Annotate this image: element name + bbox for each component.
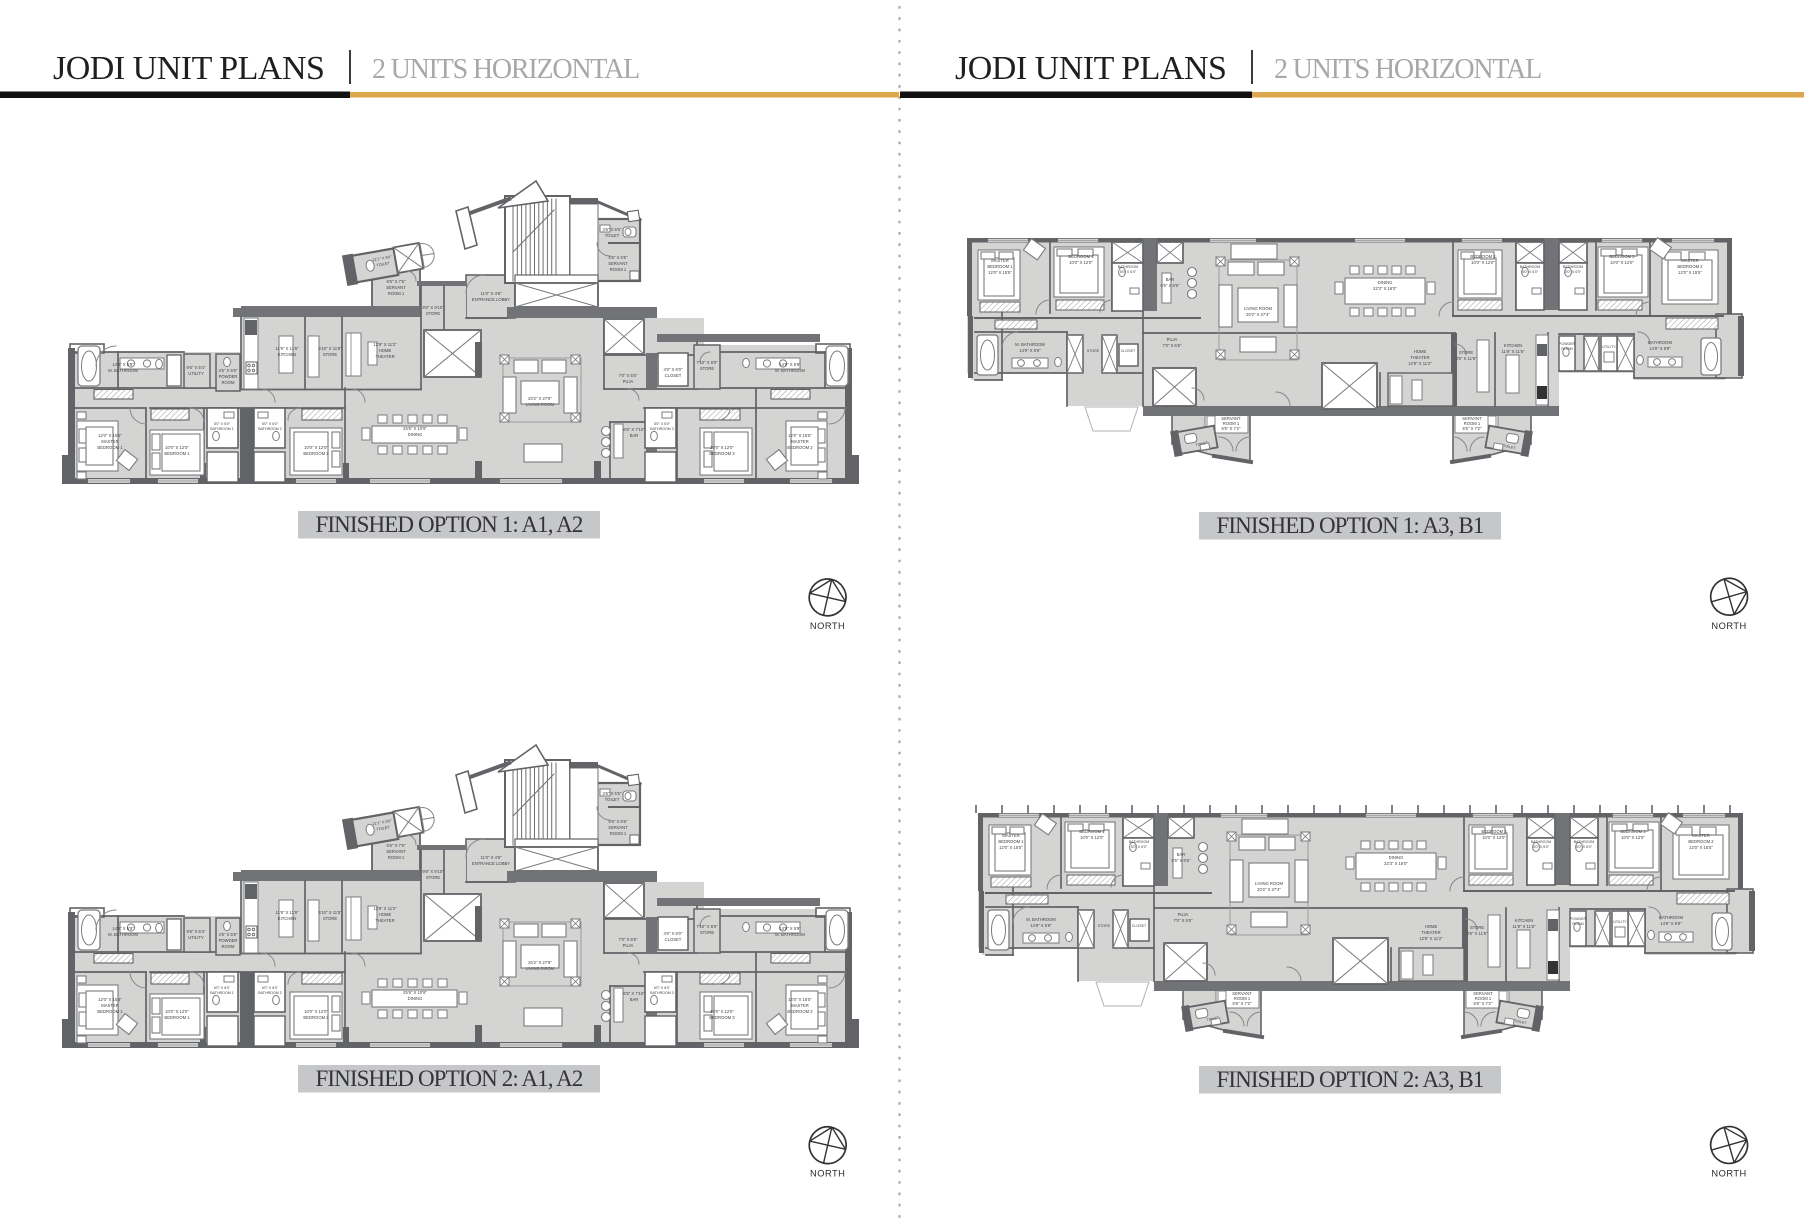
svg-text:6'5" X 6'5": 6'5" X 6'5": [1160, 283, 1180, 288]
svg-text:THEATER: THEATER: [1410, 355, 1429, 360]
svg-text:M. BATHROOM: M. BATHROOM: [108, 368, 138, 373]
svg-text:STORE: STORE: [426, 311, 441, 316]
svg-text:HOME: HOME: [379, 348, 392, 353]
svg-text:BATHROOM: BATHROOM: [1563, 265, 1584, 269]
svg-text:7'0" X 5'5": 7'0" X 5'5": [1162, 343, 1182, 348]
svg-text:BATHROOM: BATHROOM: [1118, 265, 1139, 269]
svg-text:12'0" X 15'5": 12'0" X 15'5": [988, 270, 1012, 275]
svg-text:12'0" X 15'5": 12'0" X 15'5": [1678, 270, 1702, 275]
svg-text:9'5" X 5'4": 9'5" X 5'4": [186, 365, 206, 370]
svg-text:POWDER: POWDER: [219, 374, 238, 379]
svg-text:20'2" X 27'9": 20'2" X 27'9": [528, 396, 552, 401]
svg-text:NORTH: NORTH: [1711, 1169, 1746, 1179]
svg-text:CLOSET: CLOSET: [1121, 349, 1136, 353]
svg-text:12'0" X 15'5": 12'0" X 15'5": [788, 433, 812, 438]
svg-text:NORTH: NORTH: [1711, 621, 1746, 631]
svg-text:12'9" X 11'2": 12'9" X 11'2": [373, 342, 397, 347]
svg-text:11'0" X 4'6": 11'0" X 4'6": [480, 291, 502, 296]
svg-text:MASTER: MASTER: [791, 439, 808, 444]
svg-text:BEDROOM 1: BEDROOM 1: [1068, 254, 1094, 259]
svg-text:MASTER: MASTER: [101, 439, 118, 444]
svg-text:STORE: STORE: [700, 366, 715, 371]
svg-text:BEDROOM 1: BEDROOM 1: [987, 264, 1013, 269]
svg-text:ROOM: ROOM: [221, 380, 235, 385]
svg-text:STORE: STORE: [1459, 350, 1474, 355]
svg-text:2 UNITS HORIZONTAL: 2 UNITS HORIZONTAL: [372, 54, 639, 85]
svg-text:SERVANT: SERVANT: [608, 261, 628, 266]
svg-text:MASTER: MASTER: [991, 258, 1008, 263]
svg-text:PUJA: PUJA: [1167, 337, 1178, 342]
svg-text:HOME: HOME: [1414, 349, 1427, 354]
svg-text:3'6" X 5'5": 3'6" X 5'5": [602, 227, 622, 232]
svg-text:7'0" X 5'5": 7'0" X 5'5": [618, 373, 638, 378]
svg-text:FINISHED OPTION 1: A3, B1: FINISHED OPTION 1: A3, B1: [1217, 513, 1484, 538]
svg-text:6'5" X 6'5": 6'5" X 6'5": [608, 255, 628, 260]
svg-text:BEDROOM 2: BEDROOM 2: [303, 451, 329, 456]
svg-text:5'0" X 6'0": 5'0" X 6'0": [654, 422, 671, 426]
svg-text:BATHROOM 2: BATHROOM 2: [258, 427, 282, 431]
svg-text:KITCHEN: KITCHEN: [1504, 343, 1522, 348]
svg-text:BATHROOM 1: BATHROOM 1: [210, 427, 234, 431]
svg-text:BATHROOM 3: BATHROOM 3: [650, 427, 674, 431]
svg-text:10'0" X 12'0": 10'0" X 12'0": [1610, 260, 1634, 265]
svg-text:6'5" X 7'5": 6'5" X 7'5": [386, 279, 406, 284]
svg-text:KITCHEN: KITCHEN: [278, 352, 296, 357]
svg-text:SERVANT: SERVANT: [386, 285, 406, 290]
svg-text:NORTH: NORTH: [810, 1169, 845, 1179]
svg-text:ROOM: ROOM: [1561, 347, 1572, 351]
svg-text:5'0" X 6'0": 5'0" X 6'0": [1522, 270, 1539, 274]
svg-text:UTILITY: UTILITY: [1602, 345, 1616, 349]
svg-text:THEATER: THEATER: [375, 354, 394, 359]
svg-text:BAR: BAR: [630, 433, 639, 438]
svg-text:M. BATHROOM: M. BATHROOM: [1015, 342, 1045, 347]
svg-text:9'6" X 9'10": 9'6" X 9'10": [422, 305, 444, 310]
svg-text:BEDROOM 1: BEDROOM 1: [97, 445, 123, 450]
svg-text:POWDER: POWDER: [1559, 342, 1576, 346]
svg-text:BEDROOM 1: BEDROOM 1: [164, 451, 190, 456]
svg-text:7'10" X 6'0": 7'10" X 6'0": [696, 360, 718, 365]
svg-text:M. BATHROOM: M. BATHROOM: [775, 368, 805, 373]
svg-text:BATHROOM: BATHROOM: [1520, 265, 1541, 269]
svg-text:BEDROOM 2: BEDROOM 2: [1470, 254, 1496, 259]
svg-text:ROOM 1: ROOM 1: [388, 291, 405, 296]
svg-text:BATHROOM: BATHROOM: [1648, 340, 1672, 345]
svg-text:2 UNITS HORIZONTAL: 2 UNITS HORIZONTAL: [1274, 54, 1541, 85]
svg-text:11'9" X 11'6": 11'9" X 11'6": [275, 346, 299, 351]
svg-text:14'9" X 5'9": 14'9" X 5'9": [779, 362, 801, 367]
svg-text:25'6" X 10'9": 25'6" X 10'9": [403, 426, 427, 431]
svg-text:JODI UNIT PLANS: JODI UNIT PLANS: [53, 50, 324, 87]
svg-text:22'3" X 16'0": 22'3" X 16'0": [1373, 286, 1397, 291]
svg-text:4'0" X 6'0": 4'0" X 6'0": [663, 367, 683, 372]
svg-text:10'0" X 12'0": 10'0" X 12'0": [710, 445, 734, 450]
svg-text:CLOSET: CLOSET: [665, 373, 682, 378]
svg-text:DINING: DINING: [1378, 280, 1393, 285]
svg-text:UTILITY: UTILITY: [188, 371, 204, 376]
svg-text:BEDROOM 3: BEDROOM 3: [1609, 254, 1635, 259]
svg-text:20'2" X 27'4": 20'2" X 27'4": [1246, 312, 1270, 317]
svg-text:12'0" X 15'5": 12'0" X 15'5": [98, 433, 122, 438]
svg-text:5'0" X 6'0": 5'0" X 6'0": [1120, 270, 1137, 274]
svg-text:10'0" X 12'0": 10'0" X 12'0": [165, 445, 189, 450]
svg-text:14'9" X 5'9": 14'9" X 5'9": [1019, 348, 1041, 353]
svg-text:MASTER: MASTER: [1681, 258, 1698, 263]
svg-text:14'9" X 5'9": 14'9" X 5'9": [1649, 346, 1671, 351]
svg-text:LIVING ROOM: LIVING ROOM: [1244, 306, 1272, 311]
svg-text:STORE: STORE: [1087, 349, 1100, 353]
svg-text:BAR: BAR: [1166, 277, 1175, 282]
svg-text:11'9" X 11'6": 11'9" X 11'6": [1501, 349, 1525, 354]
svg-text:STORE: STORE: [323, 352, 338, 357]
svg-text:3'5" X 11'5": 3'5" X 11'5": [1455, 356, 1477, 361]
svg-text:PUJA: PUJA: [623, 379, 634, 384]
svg-text:6'5" X 7'2": 6'5" X 7'2": [1462, 426, 1482, 431]
svg-text:FINISHED OPTION 2: A1, A2: FINISHED OPTION 2: A1, A2: [316, 1066, 583, 1091]
svg-text:5'0" X 6'0": 5'0" X 6'0": [214, 422, 231, 426]
svg-text:12'9" X 11'2": 12'9" X 11'2": [1408, 361, 1432, 366]
svg-text:ROOM 1: ROOM 1: [610, 267, 627, 272]
svg-text:FINISHED OPTION 1: A1, A2: FINISHED OPTION 1: A1, A2: [316, 512, 583, 537]
svg-text:LIVING ROOM: LIVING ROOM: [526, 402, 554, 407]
svg-text:5'0" X 6'0": 5'0" X 6'0": [1565, 270, 1582, 274]
svg-text:DINING: DINING: [408, 432, 423, 437]
svg-text:10'0" X 12'0": 10'0" X 12'0": [1471, 260, 1495, 265]
svg-text:6'5" X 7'10": 6'5" X 7'10": [623, 427, 645, 432]
svg-text:FINISHED OPTION 2: A3, B1: FINISHED OPTION 2: A3, B1: [1217, 1067, 1484, 1092]
svg-text:10'0" X 12'0": 10'0" X 12'0": [304, 445, 328, 450]
svg-text:JODI UNIT PLANS: JODI UNIT PLANS: [955, 50, 1226, 87]
svg-text:BEDROOM 2: BEDROOM 2: [1677, 264, 1703, 269]
svg-text:6'5" X 7'2": 6'5" X 7'2": [1221, 426, 1241, 431]
svg-text:ENTRANCE LOBBY: ENTRANCE LOBBY: [472, 297, 510, 302]
svg-text:NORTH: NORTH: [810, 621, 845, 631]
svg-text:4'5" X 5'6": 4'5" X 5'6": [218, 368, 238, 373]
svg-text:5'0" X 6'0": 5'0" X 6'0": [262, 422, 279, 426]
svg-text:TOILET: TOILET: [605, 233, 620, 238]
svg-text:10'0" X 12'0": 10'0" X 12'0": [1069, 260, 1093, 265]
svg-text:5'10" X 11'5": 5'10" X 11'5": [318, 346, 342, 351]
svg-text:BEDROOM 3: BEDROOM 3: [709, 451, 735, 456]
svg-text:BEDROOM 2: BEDROOM 2: [787, 445, 813, 450]
svg-text:14'9" X 5'9": 14'9" X 5'9": [112, 362, 134, 367]
